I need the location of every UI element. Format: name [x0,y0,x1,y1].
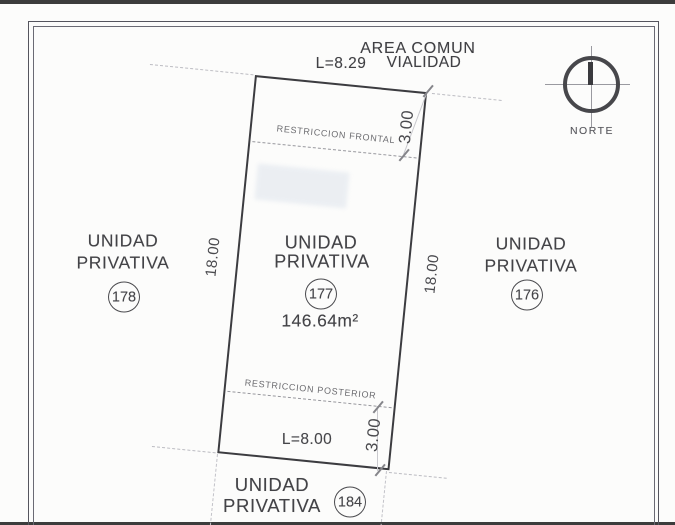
site-plan-document: AREA COMUN L=8.29 VIALIDAD NORTE RESTRIC… [0,0,675,525]
neighbor-bottom-number-badge: 184 [334,487,366,518]
scan-edge-top [0,0,675,4]
north-label: NORTE [570,125,614,137]
neighbor-left-number-badge: 178 [108,282,140,313]
bottom-length-label: L=8.00 [282,431,332,449]
neighbor-left-name-line1: UNIDAD [88,231,159,252]
neighbor-bottom-name-line1: UNIDAD [235,474,310,496]
top-length-label: L=8.29 [316,55,367,73]
neighbor-right-name-line2: PRIVATIVA [485,256,578,277]
parcel-name-line2: PRIVATIVA [274,252,369,273]
neighbor-left-name-line2: PRIVATIVA [77,253,170,274]
parcel-number-badge: 177 [305,279,337,310]
vialidad-label: VIALIDAD [387,54,462,72]
neighbor-bottom-name-line2: PRIVATIVA [223,495,321,517]
parcel-area-label: 146.64m² [281,311,358,332]
parcel-name-line1: UNIDAD [285,233,358,254]
neighbor-right-number-badge: 176 [511,280,543,311]
rear-setback-dimension: 3.00 [363,417,385,453]
north-needle-icon [588,62,593,85]
front-setback-dimension: 3.00 [396,109,418,145]
neighbor-right-name-line1: UNIDAD [496,234,567,255]
